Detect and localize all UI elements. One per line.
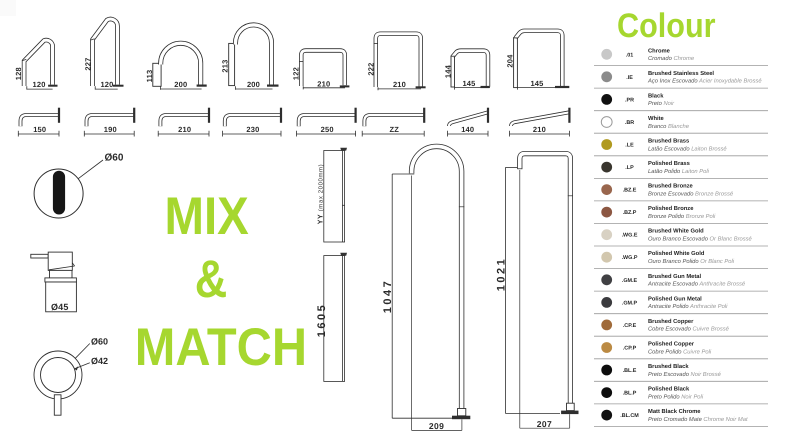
svg-text:207: 207 — [537, 419, 552, 429]
svg-text:Preto Polido Noir Poli: Preto Polido Noir Poli — [648, 393, 704, 400]
svg-text:Brushed Black: Brushed Black — [648, 363, 689, 370]
svg-text:145: 145 — [462, 79, 475, 88]
svg-text:Polished White Gold: Polished White Gold — [648, 250, 705, 257]
svg-text:Polished Copper: Polished Copper — [648, 341, 695, 348]
svg-text:Ø60: Ø60 — [91, 337, 108, 347]
svg-text:144: 144 — [443, 64, 452, 78]
svg-text:210: 210 — [393, 80, 406, 89]
svg-text:Latão Polido Laiton Poli: Latão Polido Laiton Poli — [648, 168, 710, 175]
svg-text:&: & — [195, 250, 228, 309]
svg-text:Ouro Branco Polido Or Blanc Po: Ouro Branco Polido Or Blanc Poli — [648, 258, 735, 265]
svg-text:213: 213 — [221, 59, 230, 72]
svg-text:.BZ.P: .BZ.P — [623, 210, 637, 216]
svg-text:120: 120 — [100, 80, 113, 89]
svg-text:Brushed Brass: Brushed Brass — [648, 138, 689, 145]
svg-text:200: 200 — [247, 80, 260, 89]
svg-text:145: 145 — [530, 79, 543, 88]
svg-text:Brushed Stainless Steel: Brushed Stainless Steel — [648, 70, 714, 77]
svg-text:Branco Blanche: Branco Blanche — [648, 123, 690, 130]
svg-text:Brushed Gun Metal: Brushed Gun Metal — [648, 273, 702, 280]
svg-text:Brushed White Gold: Brushed White Gold — [648, 228, 704, 235]
svg-text:190: 190 — [104, 125, 117, 134]
svg-text:150: 150 — [33, 125, 46, 134]
svg-text:Preto Noir: Preto Noir — [648, 100, 675, 107]
svg-text:120: 120 — [33, 80, 46, 89]
svg-text:.LP: .LP — [625, 165, 634, 171]
svg-text:.PR: .PR — [625, 97, 634, 103]
svg-text:250: 250 — [321, 125, 334, 134]
svg-text:210: 210 — [178, 125, 191, 134]
svg-text:.WG.E: .WG.E — [622, 233, 638, 239]
svg-text:230: 230 — [246, 125, 259, 134]
svg-text:MATCH: MATCH — [135, 318, 307, 377]
svg-text:Ø60: Ø60 — [105, 153, 124, 164]
svg-text:.WG.P: .WG.P — [622, 255, 638, 261]
svg-text:222: 222 — [366, 62, 375, 75]
svg-text:.CP.P: .CP.P — [623, 346, 637, 352]
svg-text:YY (max 2000mm): YY (max 2000mm) — [318, 164, 325, 225]
svg-text:.GM.E: .GM.E — [622, 278, 638, 284]
svg-text:Polished Brass: Polished Brass — [648, 160, 690, 167]
svg-text:Bronze Escovado Bronze Brossé: Bronze Escovado Bronze Brossé — [648, 190, 734, 197]
svg-text:.BR: .BR — [625, 120, 634, 126]
svg-text:Ø42: Ø42 — [91, 356, 108, 366]
svg-text:.BL.E: .BL.E — [623, 368, 637, 374]
svg-text:204: 204 — [506, 54, 515, 68]
svg-text:227: 227 — [83, 57, 92, 70]
svg-text:Antracite Escovado Anthracite: Antracite Escovado Anthracite Brossé — [647, 281, 746, 288]
svg-text:Aço Inox Escovado Acier Inoxyd: Aço Inox Escovado Acier Inoxydable Bross… — [647, 78, 762, 85]
svg-text:1021: 1021 — [496, 257, 508, 291]
svg-text:Ø45: Ø45 — [51, 302, 69, 312]
svg-text:122: 122 — [291, 67, 300, 80]
svg-text:.LE: .LE — [625, 143, 634, 149]
svg-text:Polished Black: Polished Black — [648, 386, 690, 393]
svg-text:210: 210 — [533, 125, 546, 134]
svg-text:.BL.CM: .BL.CM — [620, 413, 639, 419]
svg-text:113: 113 — [145, 70, 154, 83]
svg-text:210: 210 — [317, 79, 330, 88]
svg-text:Cromado Chrome: Cromado Chrome — [648, 55, 695, 62]
svg-text:1605: 1605 — [316, 303, 328, 337]
svg-text:Brushed Copper: Brushed Copper — [648, 318, 694, 325]
svg-text:140: 140 — [461, 125, 474, 134]
svg-text:128: 128 — [14, 67, 23, 80]
svg-text:.IE: .IE — [626, 75, 633, 81]
svg-text:White: White — [648, 115, 665, 122]
svg-text:.BL.P: .BL.P — [623, 391, 637, 397]
svg-text:.GM.P: .GM.P — [622, 300, 638, 306]
svg-text:Bronze Polido Bronze Poli: Bronze Polido Bronze Poli — [648, 213, 716, 220]
svg-text:Matt Black Chrome: Matt Black Chrome — [648, 408, 701, 415]
svg-text:.CP.E: .CP.E — [623, 323, 637, 329]
svg-text:Black: Black — [648, 92, 664, 99]
svg-text:Colour: Colour — [617, 7, 716, 45]
svg-text:Polished Bronze: Polished Bronze — [648, 205, 694, 212]
svg-text:Preto Escovado Noir Brossé: Preto Escovado Noir Brossé — [648, 371, 722, 378]
svg-text:Cobre Escovado Cuivre Brossé: Cobre Escovado Cuivre Brossé — [648, 326, 730, 333]
svg-text:Chrome: Chrome — [648, 47, 671, 54]
svg-text:Latão Escovado Laiton Brossé: Latão Escovado Laiton Brossé — [648, 145, 727, 152]
svg-text:1047: 1047 — [382, 279, 394, 313]
svg-text:Polished Gun Metal: Polished Gun Metal — [648, 295, 702, 302]
svg-text:Ouro Branco Escovado Or Blanc: Ouro Branco Escovado Or Blanc Brossé — [648, 236, 753, 243]
svg-text:Preto Cromado Mate Chrome Noir: Preto Cromado Mate Chrome Noir Mat — [648, 416, 748, 423]
svg-text:MIX: MIX — [164, 187, 248, 246]
svg-text:.01: .01 — [626, 52, 634, 58]
svg-text:ZZ: ZZ — [390, 125, 400, 134]
svg-text:Cobre Polido Cuivre Poli: Cobre Polido Cuivre Poli — [648, 348, 712, 355]
svg-text:209: 209 — [429, 421, 444, 431]
svg-text:.BZ.E: .BZ.E — [623, 188, 637, 194]
svg-text:Antracite Polido Anthracite Po: Antracite Polido Anthracite Poli — [647, 303, 728, 310]
svg-text:200: 200 — [174, 80, 187, 89]
svg-text:Brushed Bronze: Brushed Bronze — [648, 183, 694, 190]
